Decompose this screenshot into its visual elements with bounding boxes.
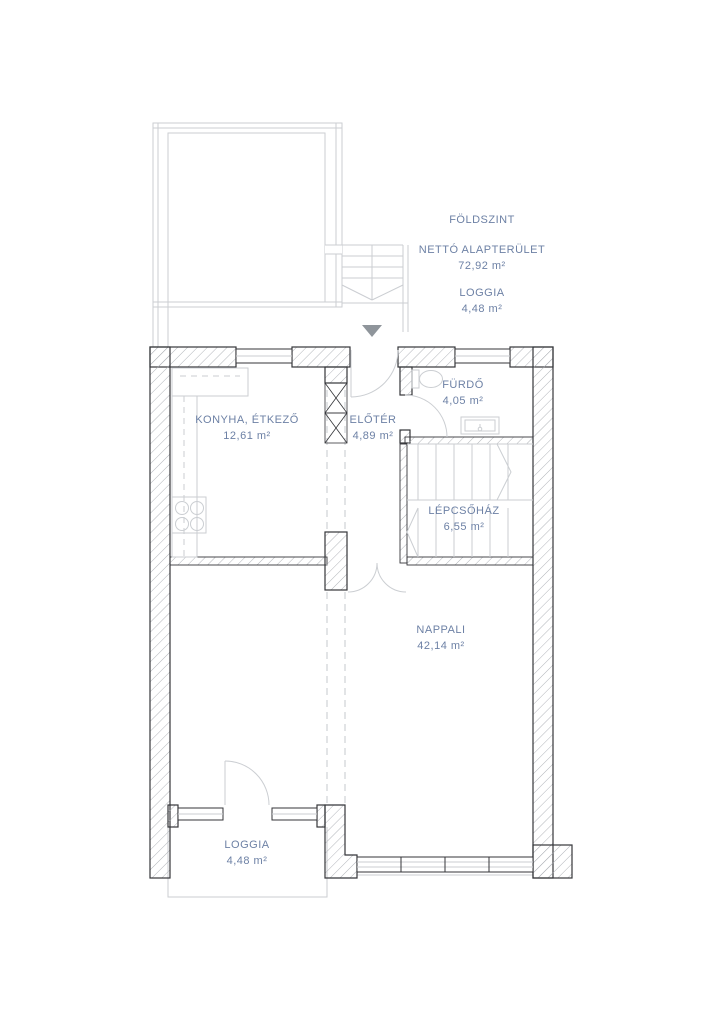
room-label-furdo: FÜRDŐ 4,05 m² bbox=[442, 377, 484, 409]
room-label-konyha: KONYHA, ÉTKEZŐ 12,61 m² bbox=[195, 412, 299, 444]
room-label-nappali: NAPPALI 42,14 m² bbox=[416, 622, 465, 654]
net-area-label: NETTÓ ALAPTERÜLET 72,92 m² bbox=[419, 242, 545, 274]
floorplan-page: FÖLDSZINT NETTÓ ALAPTERÜLET 72,92 m² LOG… bbox=[0, 0, 725, 1023]
upper-structure-outline bbox=[153, 123, 342, 347]
floorplan-drawing bbox=[0, 0, 725, 1023]
entrance-arrow-icon bbox=[362, 325, 382, 337]
floor-title: FÖLDSZINT bbox=[449, 212, 515, 228]
projection-dashed-lines bbox=[327, 390, 345, 803]
duct-shaft bbox=[325, 383, 347, 443]
interior-staircase bbox=[407, 444, 533, 557]
room-label-lepcsohaz: LÉPCSŐHÁZ 6,55 m² bbox=[428, 503, 499, 535]
room-label-eloter: ELŐTÉR 4,89 m² bbox=[349, 412, 396, 444]
exterior-stairs bbox=[342, 245, 408, 332]
info-loggia-label: LOGGIA 4,48 m² bbox=[459, 285, 504, 317]
room-label-loggia: LOGGIA 4,48 m² bbox=[224, 837, 269, 869]
kitchen-fixtures bbox=[172, 368, 248, 557]
